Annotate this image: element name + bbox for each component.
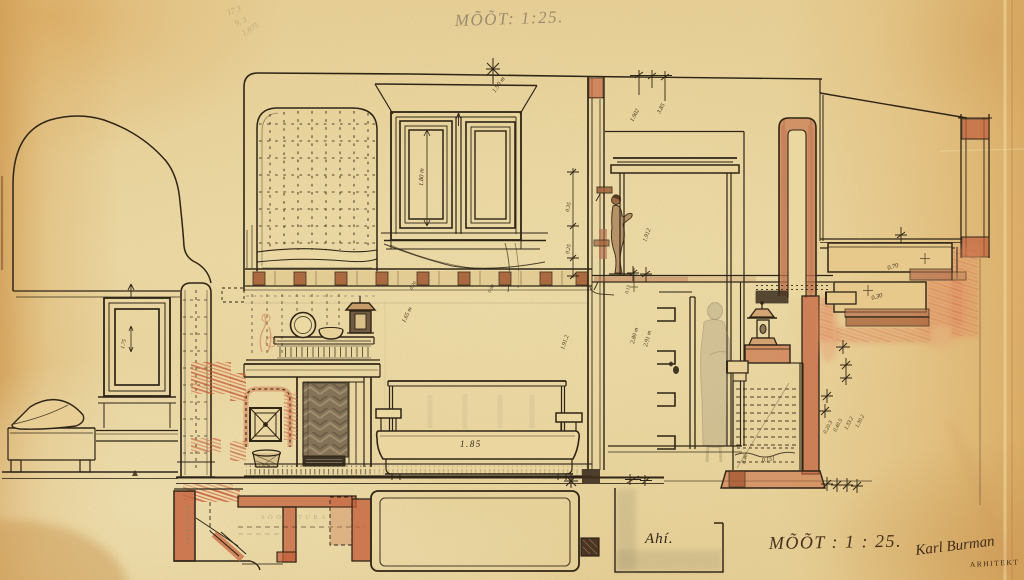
svg-text:1.85: 1.85: [460, 439, 482, 449]
svg-text:1.80 m: 1.80 m: [418, 168, 426, 186]
svg-text:Ahí.: Ahí.: [644, 531, 674, 547]
svg-text:SÖÖGITUBA: SÖÖGITUBA: [261, 514, 329, 521]
svg-text:MÕÕT : 1 : 25.: MÕÕT : 1 : 25.: [768, 531, 903, 553]
svg-text:MÕÕT: 1:25.: MÕÕT: 1:25.: [453, 7, 564, 30]
svg-text:TREPIKODA: TREPIKODA: [186, 505, 192, 545]
